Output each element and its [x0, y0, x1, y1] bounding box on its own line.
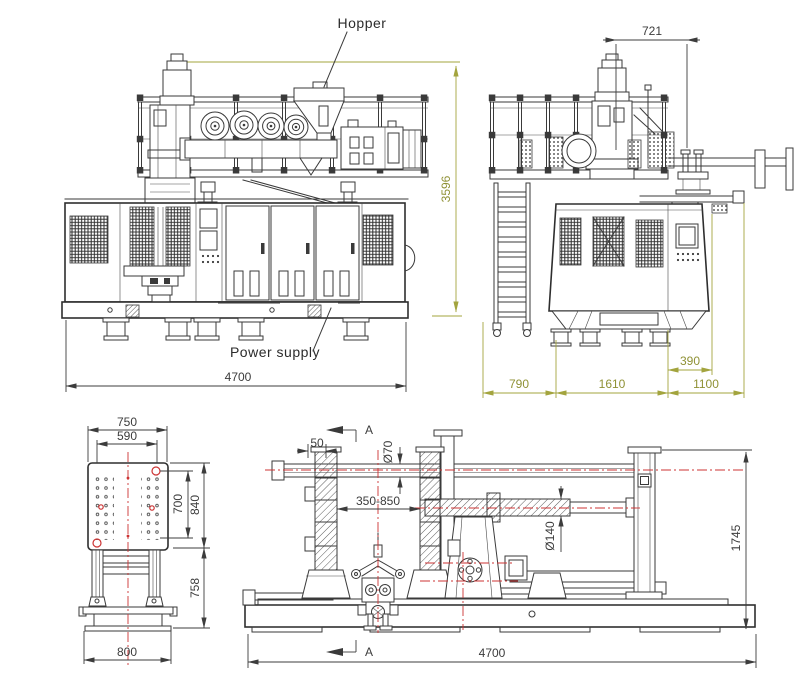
section-marker-a-top: A — [365, 423, 373, 437]
dim-side-offset: 390 — [680, 354, 700, 368]
dim-platen-inner-height: 700 — [171, 494, 185, 514]
pulley-wheels — [201, 111, 308, 140]
dim-side-top: 721 — [642, 24, 662, 38]
support-jack-left — [198, 182, 217, 205]
dim-platen-outer-width: 750 — [117, 415, 137, 429]
dim-section-height: 1745 — [729, 524, 743, 551]
hopper-label: Hopper — [338, 15, 387, 31]
section-marker-bottom: A — [326, 640, 373, 659]
section-marker-a-bottom: A — [365, 645, 373, 659]
platen-view: 750 590 700 840 758 800 — [79, 415, 210, 668]
cabinet — [65, 199, 415, 302]
dim-side-middle: 1610 — [599, 377, 626, 391]
section-arrow-icon — [326, 648, 343, 656]
dim-platen-outer-height: 840 — [188, 495, 202, 515]
hopper-leader-line — [324, 32, 347, 87]
vent-panel-left — [70, 216, 108, 263]
dim-platen-base-width: 800 — [117, 645, 137, 659]
section-view: 50 Ø70 350-850 Ø140 1745 4700 A — [243, 423, 756, 668]
dim-side-left: 790 — [509, 377, 529, 391]
support-jack-right — [338, 182, 357, 205]
feet — [103, 318, 369, 340]
extruder-barrel — [180, 138, 337, 175]
clamp-tower — [145, 54, 195, 204]
dim-platen-inner-width: 590 — [117, 429, 137, 443]
side-base — [551, 311, 706, 346]
front-view: Hopper — [62, 15, 462, 392]
drive-box — [341, 120, 421, 169]
ladder — [493, 183, 531, 337]
vent-panel-right — [363, 215, 393, 265]
power-supply-label: Power supply — [230, 344, 320, 360]
dim-front-height: 3596 — [439, 175, 453, 202]
dim-section-rod-dia: Ø70 — [381, 440, 395, 463]
section-marker-top: A — [326, 423, 373, 442]
dim-platen-leg-height: 758 — [188, 578, 202, 598]
machine-base — [62, 301, 408, 340]
dim-section-screw-dia: Ø140 — [543, 521, 557, 551]
dim-section-gap: 50 — [310, 436, 324, 450]
machine-drawing: Hopper — [0, 0, 800, 680]
dim-front-width: 4700 — [225, 370, 252, 384]
side-view: 721 390 790 1610 1100 — [483, 24, 793, 398]
dim-section-width: 4700 — [479, 646, 506, 660]
section-arrow-icon — [326, 426, 343, 434]
dim-side-right: 1100 — [693, 377, 719, 391]
side-body — [549, 204, 709, 311]
dim-section-stroke: 350-850 — [356, 494, 400, 508]
